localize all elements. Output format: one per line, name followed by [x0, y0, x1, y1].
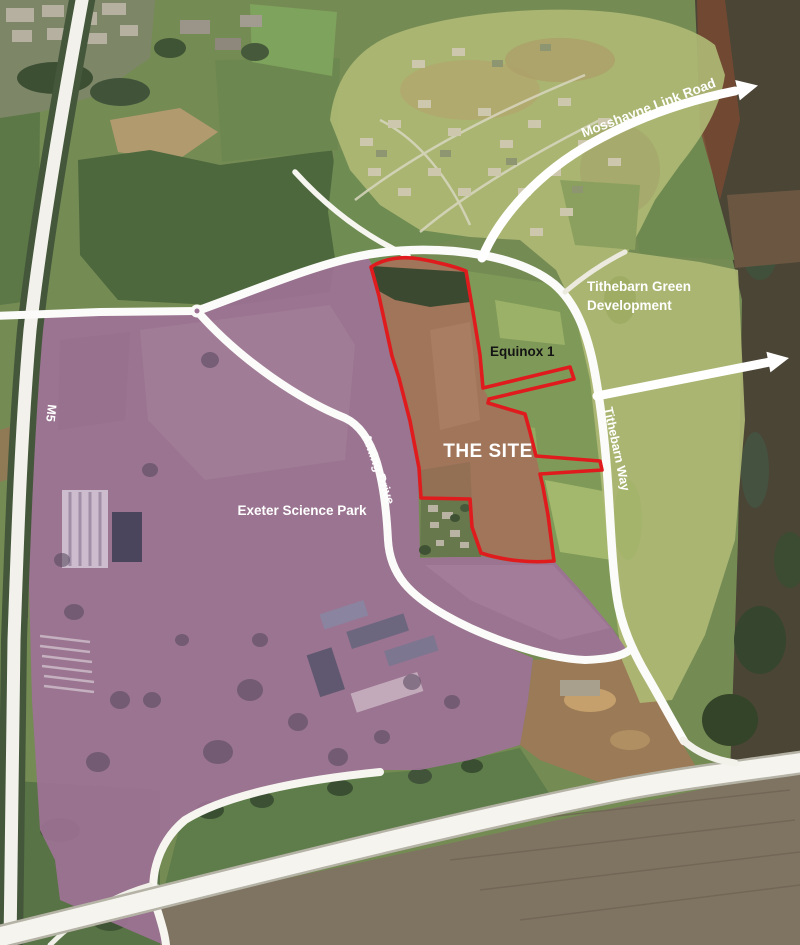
the-site-label: THE SITE: [443, 441, 533, 462]
m5-label: M5: [43, 404, 59, 423]
site-location-map: M5 Mosshayne Link Road Tithebarn Green D…: [0, 0, 800, 945]
exeter-science-park-label: Exeter Science Park: [237, 503, 367, 518]
west-access-road: [0, 311, 197, 316]
equinox-label: Equinox 1: [490, 344, 555, 359]
aerial-map-canvas: M5 Mosshayne Link Road Tithebarn Green D…: [0, 0, 800, 945]
